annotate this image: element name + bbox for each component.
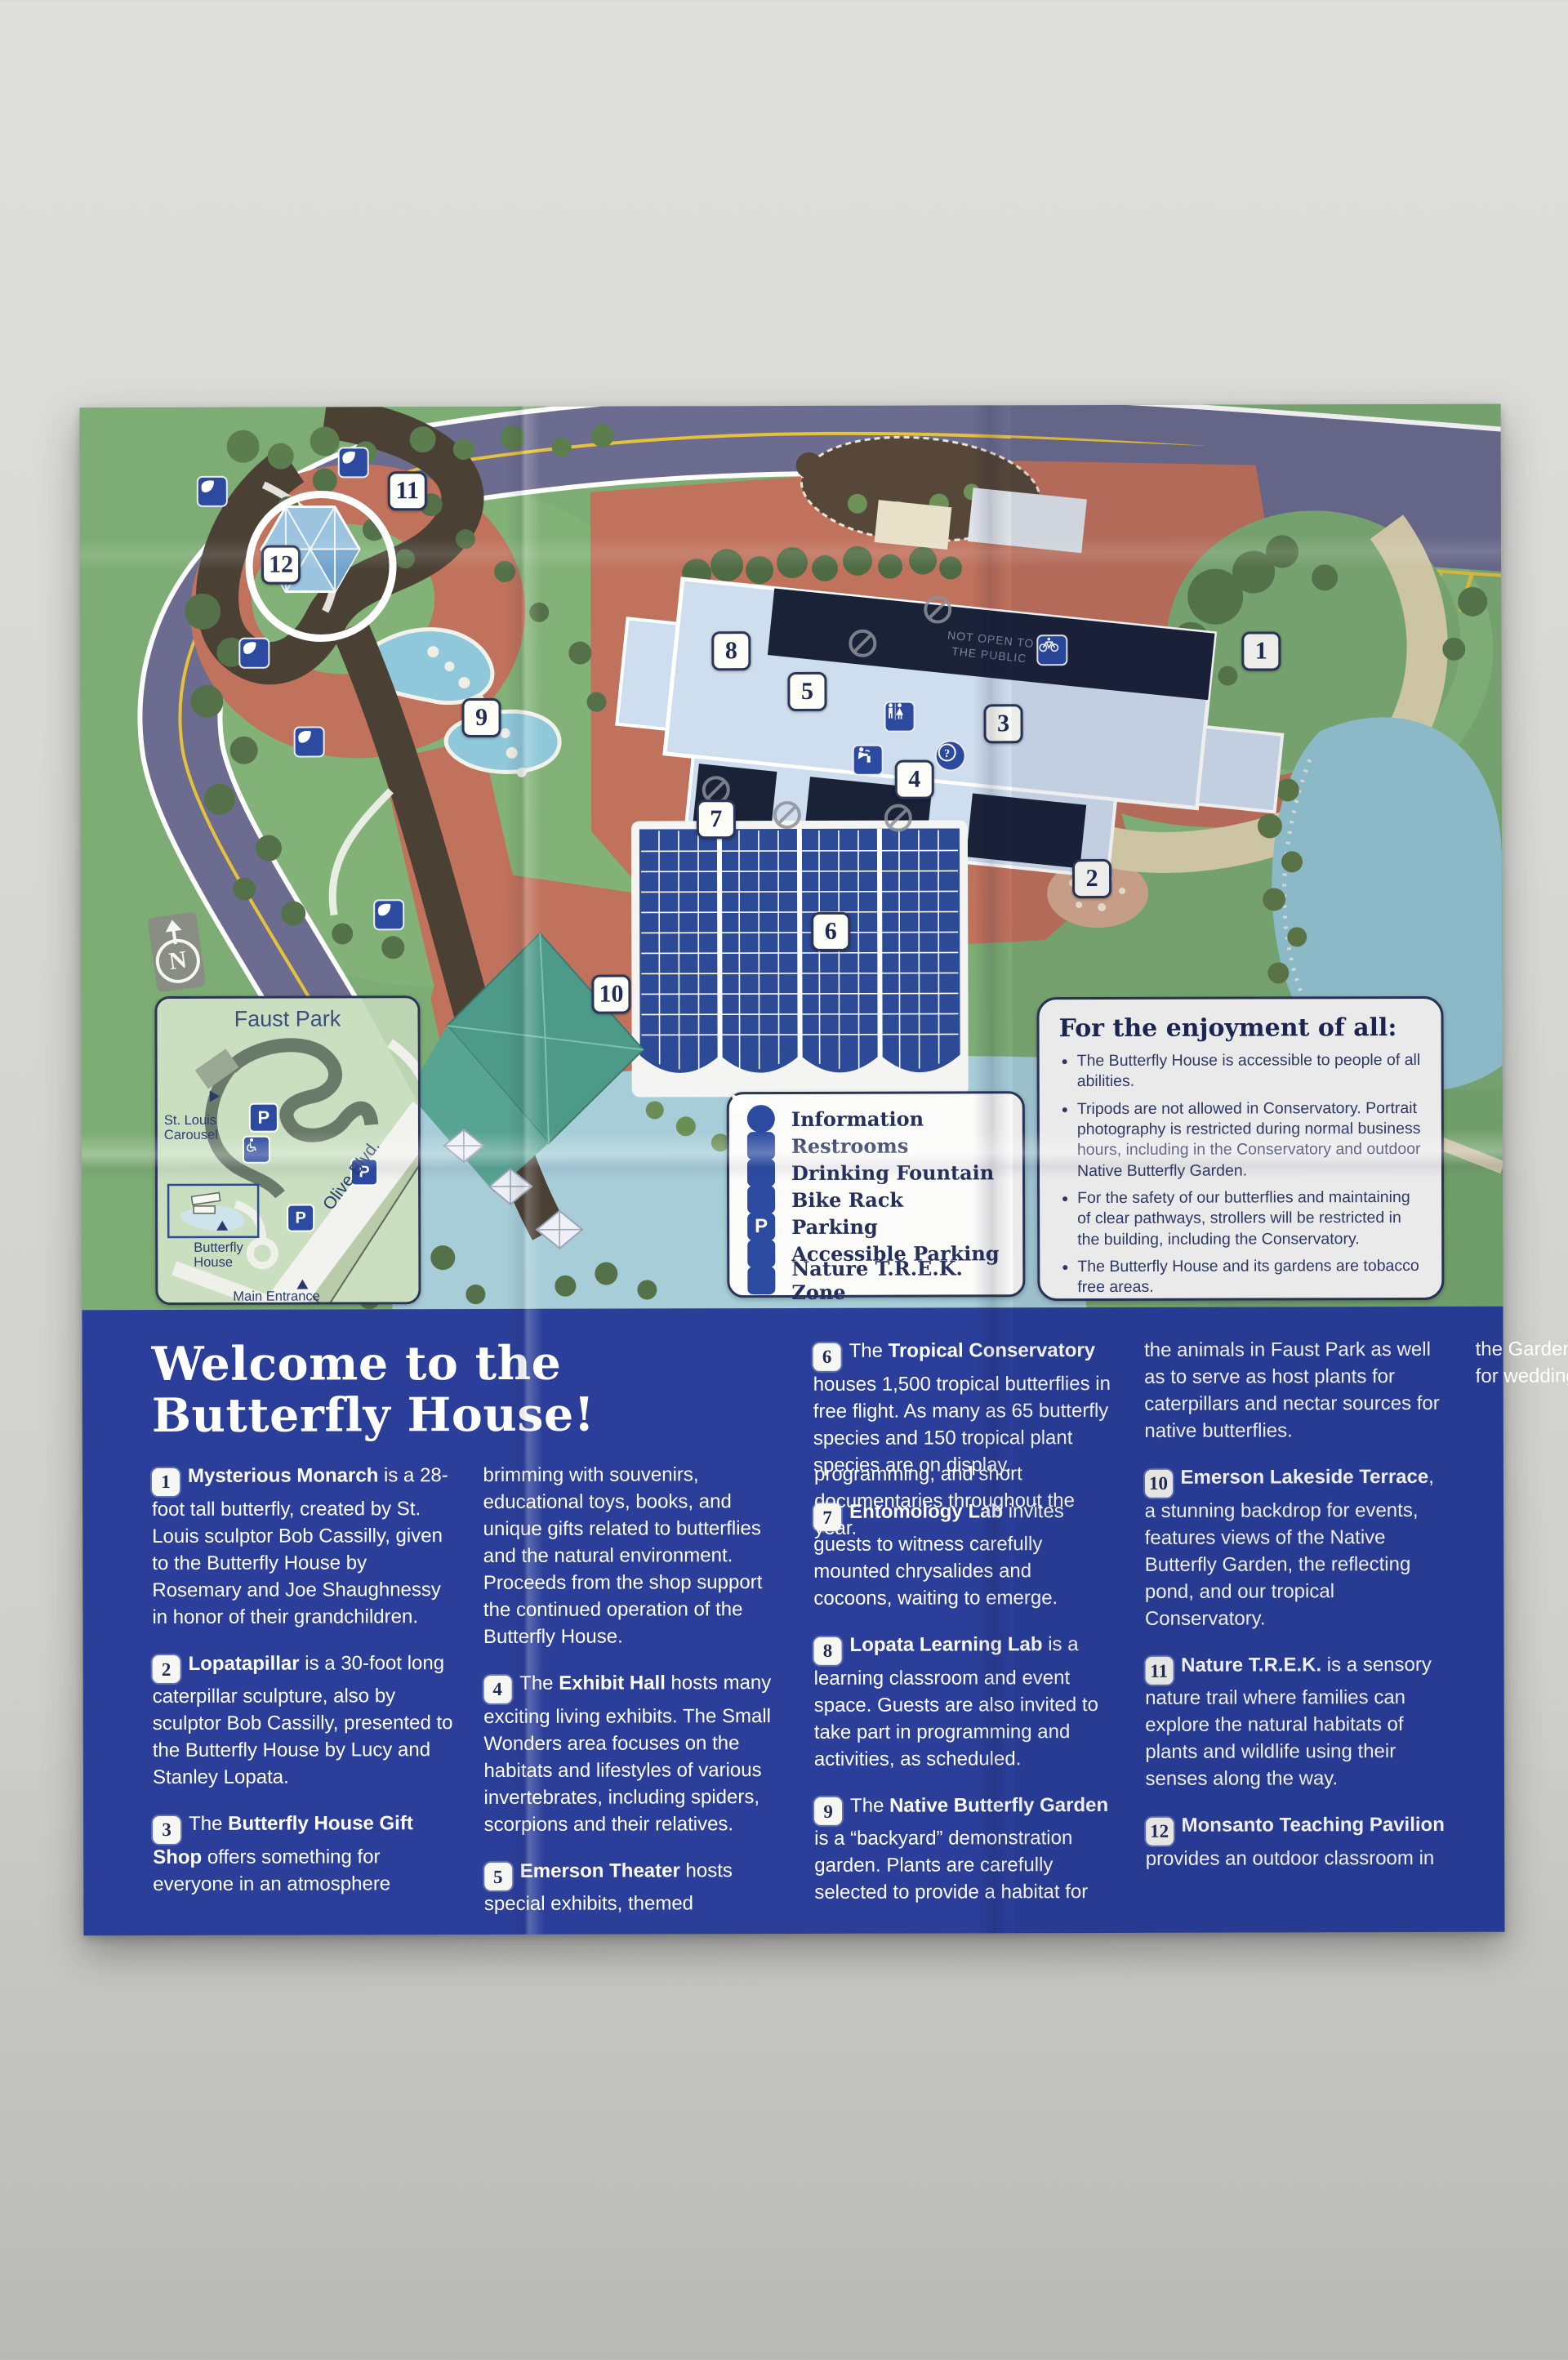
map-marker-4: 4: [895, 760, 934, 799]
item-number-badge: 2: [153, 1655, 180, 1683]
enjoyment-bullet: For the safety of our butterflies and ma…: [1077, 1187, 1425, 1250]
legend-row: Restrooms: [747, 1132, 1014, 1159]
legend-row: ? Information: [747, 1105, 1014, 1132]
map-marker-2: 2: [1072, 859, 1111, 898]
map-marker-6: 6: [811, 912, 850, 951]
enjoyment-bullet: The Butterfly House and its gardens are …: [1077, 1256, 1425, 1298]
legend-row: P Parking: [747, 1213, 1014, 1240]
map-marker-10: 10: [591, 975, 630, 1014]
map-marker-12: 12: [261, 545, 301, 585]
carousel-label: St. Louis Carousel: [164, 1113, 228, 1143]
butterfly-house-brochure: NOT OPEN TO THE PUBLIC: [80, 404, 1505, 1936]
map-marker-1: 1: [1241, 631, 1281, 670]
legend-row: Nature T.R.E.K. Zone: [747, 1267, 1014, 1294]
welcome-item-10: 10Emerson Lakeside Terrace, a stunning b…: [1144, 1463, 1446, 1632]
svg-text:?: ?: [944, 748, 950, 760]
drinking-fountain-icon: [853, 745, 884, 776]
enjoyment-bullet: Tripods are not allowed in Conservatory.…: [1077, 1098, 1425, 1182]
welcome-item-4: 4The Exhibit Hall hosts many exciting li…: [483, 1669, 786, 1837]
butterfly-house-arrow: [216, 1221, 228, 1231]
legend-label: Bike Rack: [791, 1187, 903, 1211]
legend-label: Drinking Fountain: [791, 1160, 994, 1185]
no-entry-icon: [849, 630, 876, 657]
item-number-badge: 8: [813, 1636, 841, 1664]
enjoyment-title: For the enjoyment of all:: [1059, 1013, 1425, 1043]
nature-trek-icon: [197, 476, 228, 507]
no-entry-icon: [884, 804, 912, 832]
enjoyment-list: The Butterfly House is accessible to peo…: [1059, 1050, 1426, 1310]
welcome-item-6: 6The Tropical Conservatory houses 1,500 …: [813, 1337, 1116, 1478]
item-number-badge: 5: [484, 1863, 512, 1890]
item-number-badge: 11: [1145, 1657, 1173, 1685]
legend-label: Information: [791, 1107, 924, 1130]
drinking-fountain-icon: [747, 1159, 775, 1187]
tropical-conservatory: [631, 820, 969, 1097]
item-number-badge: 9: [814, 1797, 842, 1825]
no-entry-icon: [924, 595, 951, 623]
map-marker-3: 3: [984, 704, 1023, 743]
enjoyment-notice: For the enjoyment of all: The Butterfly …: [1036, 996, 1444, 1301]
butterfly-house-label: Butterfly House: [194, 1240, 267, 1271]
legend-label: Nature T.R.E.K. Zone: [791, 1256, 1014, 1304]
enjoyment-bullet: The Butterfly House is accessible to peo…: [1077, 1050, 1425, 1093]
page-title: Welcome to the Butterfly House!: [152, 1338, 785, 1441]
information-icon: ?: [747, 1105, 775, 1133]
map-legend: ? Information Restrooms Drinking Fountai…: [727, 1091, 1026, 1298]
item-number-badge: 3: [153, 1816, 180, 1844]
item-number-badge: 12: [1146, 1817, 1174, 1845]
north-letter: N: [153, 936, 203, 986]
item-number-badge: 6: [813, 1343, 841, 1370]
welcome-items-6-12: 6The Tropical Conservatory houses 1,500 …: [813, 1336, 1448, 1909]
welcome-item-1: 1Mysterious Monarch is a 28-foot tall bu…: [152, 1462, 454, 1630]
legend-label: Restrooms: [791, 1133, 908, 1157]
nature-trek-icon: [747, 1267, 775, 1294]
information-icon: ?: [935, 740, 966, 771]
inset-title: Faust Park: [157, 1006, 417, 1032]
faust-park-inset-map: Faust Park St. Louis Carousel P P P Butt…: [154, 995, 421, 1305]
nature-trek-icon: [338, 447, 369, 478]
restrooms-icon: [884, 701, 915, 732]
nature-trek-icon: [238, 638, 269, 669]
welcome-item-2: 2Lopatapillar is a 30-foot long caterpil…: [153, 1650, 455, 1791]
bike-rack-icon: [1036, 635, 1067, 666]
welcome-left-half: Welcome to the Butterfly House! 1Mysteri…: [152, 1338, 786, 1920]
welcome-panel: Welcome to the Butterfly House! 1Mysteri…: [82, 1307, 1504, 1936]
nature-trek-icon: [373, 899, 404, 930]
parking-icon: P: [287, 1204, 314, 1232]
item-number-badge: 7: [813, 1503, 841, 1531]
welcome-right-half: 6The Tropical Conservatory houses 1,500 …: [813, 1336, 1448, 1918]
map-marker-5: 5: [787, 672, 826, 711]
main-entrance-arrow: [296, 1280, 308, 1289]
legend-row: Bike Rack: [747, 1186, 1014, 1213]
main-entrance-label: Main Entrance: [233, 1289, 339, 1304]
north-arrow: N: [147, 911, 206, 993]
nature-trek-icon: [294, 726, 325, 757]
item-number-badge: 1: [152, 1468, 180, 1496]
restrooms-icon: [747, 1132, 775, 1160]
accessible-parking-icon: [747, 1240, 775, 1267]
title-line-1: Welcome to the: [152, 1338, 785, 1391]
title-line-2: Butterfly House!: [152, 1389, 785, 1442]
no-entry-icon: [773, 801, 801, 829]
welcome-item-7: 7Entomology Lab invites guests to witnes…: [813, 1497, 1116, 1611]
welcome-item-11: 11Nature T.R.E.K. is a sensory nature tr…: [1145, 1650, 1447, 1792]
parking-icon: P: [249, 1103, 278, 1133]
parking-icon: P: [747, 1213, 775, 1240]
accessible-parking-icon: [243, 1136, 270, 1164]
legend-label: Parking: [791, 1214, 878, 1238]
legend-row: Drinking Fountain: [747, 1159, 1014, 1186]
map-marker-7: 7: [697, 799, 736, 839]
welcome-item-8: 8Lopata Learning Lab is a learning class…: [813, 1631, 1116, 1772]
map-marker-11: 11: [388, 471, 427, 510]
bike-rack-icon: [747, 1186, 775, 1213]
item-number-badge: 4: [483, 1676, 511, 1703]
welcome-items-1-5: 1Mysterious Monarch is a 28-foot tall bu…: [152, 1461, 786, 1920]
map-marker-8: 8: [711, 631, 751, 670]
item-number-badge: 10: [1144, 1469, 1172, 1497]
park-map: NOT OPEN TO THE PUBLIC: [80, 404, 1503, 1311]
map-marker-9: 9: [461, 698, 501, 737]
